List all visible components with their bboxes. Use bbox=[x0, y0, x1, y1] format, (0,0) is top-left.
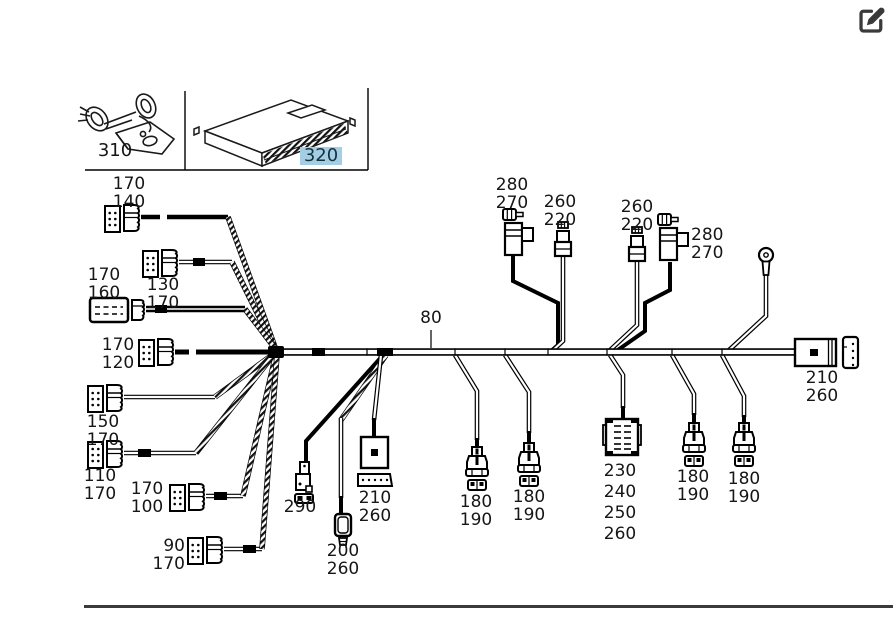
callout-130-170[interactable]: 130 170 bbox=[141, 276, 185, 312]
callout-180-190-b[interactable]: 180 190 bbox=[507, 488, 551, 524]
connector-90-170-icon bbox=[188, 537, 222, 564]
connector-180-190-d-icon bbox=[733, 423, 755, 466]
connector-170-100-icon bbox=[170, 484, 204, 511]
ring-terminal-icon bbox=[759, 248, 773, 275]
callout-170-160[interactable]: 170 160 bbox=[82, 266, 126, 302]
connector-210-260-mid-icon bbox=[358, 437, 392, 486]
callout-260-220-b[interactable]: 260 220 bbox=[615, 198, 659, 234]
callout-230-240-250-260[interactable]: 230 240 250 260 bbox=[598, 461, 642, 545]
pen-square-icon bbox=[858, 6, 886, 34]
callout-260-220-a[interactable]: 260 220 bbox=[538, 193, 582, 229]
sensor-280-270-a-icon bbox=[503, 209, 533, 255]
callout-170-100[interactable]: 170 100 bbox=[125, 480, 169, 516]
callout-310[interactable]: 310 bbox=[91, 142, 139, 160]
callout-90-170[interactable]: 90 170 bbox=[141, 537, 185, 573]
connector-180-190-b-icon bbox=[518, 443, 540, 486]
callout-210-260-mid[interactable]: 210 260 bbox=[353, 489, 397, 525]
callout-170-140[interactable]: 170 140 bbox=[107, 175, 151, 211]
callout-200-260[interactable]: 200 260 bbox=[321, 542, 365, 578]
connector-150-170-icon bbox=[88, 385, 122, 412]
callout-110-170[interactable]: 110 170 bbox=[78, 467, 122, 503]
callout-280-270-a[interactable]: 280 270 bbox=[490, 176, 534, 212]
callout-line: 310 bbox=[91, 142, 139, 160]
connector-180-190-c-icon bbox=[683, 423, 705, 466]
callout-170-120[interactable]: 170 120 bbox=[96, 336, 140, 372]
connector-180-190-a-icon bbox=[466, 447, 488, 490]
callout-280-270-b[interactable]: 280 270 bbox=[691, 226, 735, 262]
callout-80-harness[interactable]: 80 bbox=[409, 309, 453, 327]
connector-170-120-icon bbox=[139, 339, 173, 366]
callout-line: 320 bbox=[300, 147, 342, 165]
parts-diagram-page: 310 320 170 140 130 170 170 160 170 120 … bbox=[0, 0, 896, 633]
callout-320-selected[interactable]: 320 bbox=[295, 147, 347, 165]
bottom-separator bbox=[84, 605, 893, 608]
connector-130-170-icon bbox=[143, 250, 177, 277]
callout-210-260-end[interactable]: 210 260 bbox=[800, 369, 844, 405]
harness-trunk bbox=[268, 330, 798, 358]
edit-button[interactable] bbox=[858, 6, 886, 34]
callout-150-170[interactable]: 150 170 bbox=[81, 413, 125, 449]
callout-180-190-c[interactable]: 180 190 bbox=[671, 468, 715, 504]
callout-180-190-a[interactable]: 180 190 bbox=[454, 493, 498, 529]
connector-210-260-end-icon bbox=[795, 337, 858, 368]
connector-230-240-250-260-icon bbox=[603, 418, 641, 455]
sensor-280-270-b-icon bbox=[658, 214, 688, 260]
callout-290[interactable]: 290 bbox=[278, 498, 322, 516]
callout-180-190-d[interactable]: 180 190 bbox=[722, 470, 766, 506]
